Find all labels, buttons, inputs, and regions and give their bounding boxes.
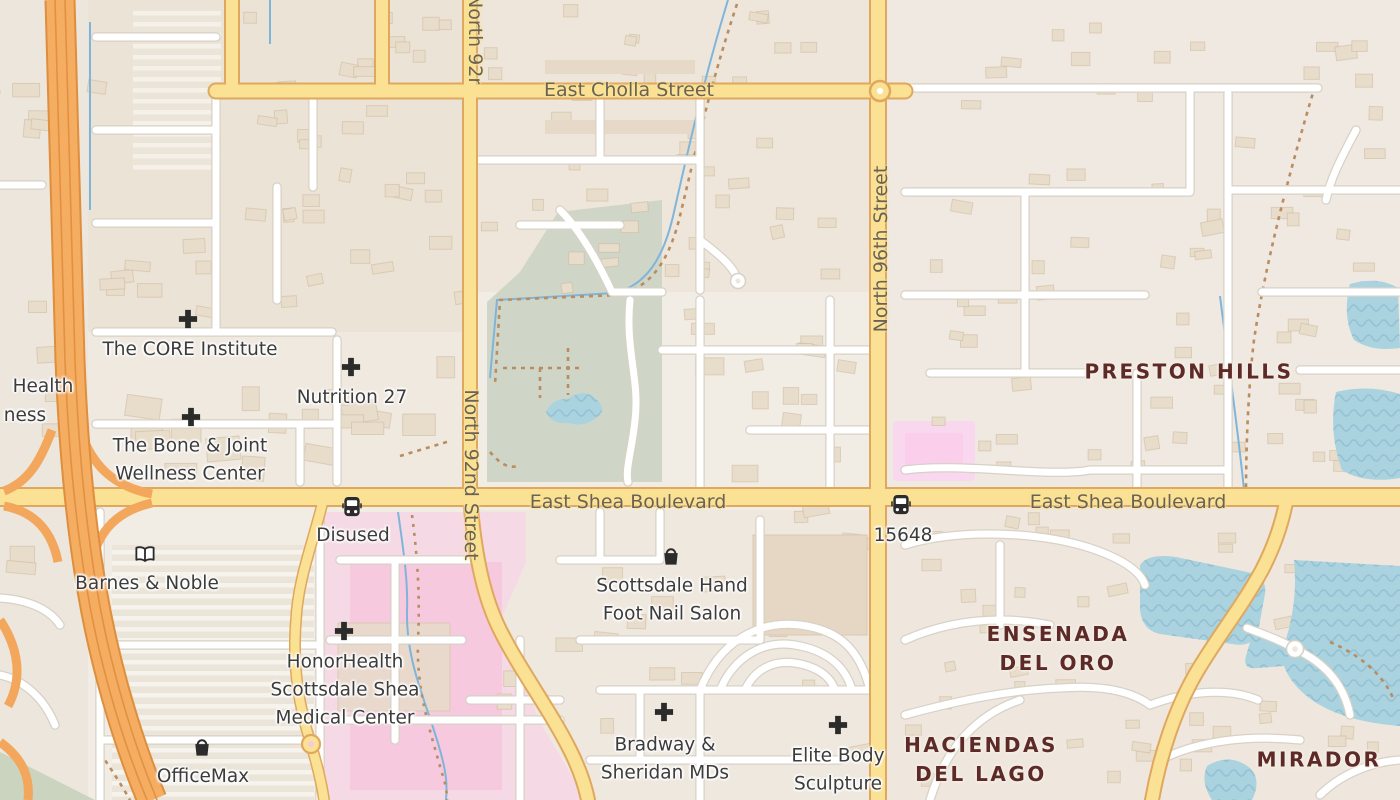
poi-label-ness-partial: ness [4,402,46,430]
poi-label-line: Health [13,373,74,401]
poi-label-bus-stop-disused: Disused [316,522,390,550]
road-label: North 96th Street [870,166,892,333]
area-label-line: HACIENDAS [904,731,1058,760]
poi-label-line: Scottsdale Shea [270,676,419,704]
medical-cross-icon [340,356,363,379]
road-label-clipped: North 92nd Street [452,0,494,84]
area-label-mirador: MIRADOR [1257,746,1382,775]
poi-label-line: Bradway & [601,731,729,759]
road-label: North 92nd Street [460,389,482,560]
medical-cross-icon [333,620,356,643]
poi-label-line: Medical Center [270,704,419,732]
poi-label-line: ness [4,402,46,430]
area-label-line: DEL LAGO [904,760,1058,789]
poi-label-line: Wellness Center [113,460,268,488]
poi-label-officemax: OfficeMax [157,763,249,791]
poi-label-honorhealth-medical-center: HonorHealthScottsdale SheaMedical Center [270,648,419,731]
poi-label-line: The Bone & Joint [113,432,268,460]
medical-cross-icon [177,308,200,331]
poi-label-scottsdale-nail-salon: Scottsdale HandFoot Nail Salon [596,572,748,628]
poi-label-line: OfficeMax [157,763,249,791]
medical-cross-icon [827,714,850,737]
road-label: East Shea Boulevard [1030,491,1227,513]
area-label-line: ENSENADA [987,620,1130,649]
poi-label-line: Sculpture [791,770,884,798]
road-label: East Shea Boulevard [530,491,727,513]
poi-label-line: Nutrition 27 [297,384,407,412]
poi-label-bus-stop-15648: 15648 [874,522,933,550]
medical-cross-icon [653,701,676,724]
book-icon [134,543,157,566]
poi-label-elite-body-sculpture: Elite BodySculpture [791,742,884,798]
poi-label-core-institute: The CORE Institute [102,336,277,364]
poi-label-barnes-noble: Barnes & Noble [75,570,219,598]
bus-icon [890,494,913,517]
poi-label-line: Barnes & Noble [75,570,219,598]
poi-label-nutrition-27: Nutrition 27 [297,384,407,412]
poi-label-health-partial: Health [13,373,74,401]
poi-label-line: Elite Body [791,742,884,770]
poi-label-bradway-sheridan-mds: Bradway &Sheridan MDs [601,731,729,787]
poi-label-line: Foot Nail Salon [596,600,748,628]
shopping-bag-icon [191,736,214,759]
poi-label-line: The CORE Institute [102,336,277,364]
area-label-line: PRESTON HILLS [1084,358,1293,387]
poi-label-bone-joint-wellness: The Bone & JointWellness Center [113,432,268,488]
shopping-bag-icon [660,545,683,568]
poi-label-line: Disused [316,522,390,550]
poi-label-line: Scottsdale Hand [596,572,748,600]
area-label-line: DEL ORO [987,649,1130,678]
road-label: North 92nd Street [464,0,486,84]
poi-label-line: HonorHealth [270,648,419,676]
poi-label-line: 15648 [874,522,933,550]
medical-cross-icon [180,406,203,429]
map-labels-layer: East Cholla StreetEast Shea BoulevardEas… [0,0,1400,800]
area-label-preston-hills: PRESTON HILLS [1084,358,1293,387]
road-label: East Cholla Street [544,79,714,101]
area-label-line: MIRADOR [1257,746,1382,775]
area-label-haciendas-del-lago: HACIENDASDEL LAGO [904,731,1058,789]
area-label-ensenada-del-oro: ENSENADADEL ORO [987,620,1130,678]
map-canvas[interactable]: East Cholla StreetEast Shea BoulevardEas… [0,0,1400,800]
poi-label-line: Sheridan MDs [601,759,729,787]
bus-icon [341,496,364,519]
